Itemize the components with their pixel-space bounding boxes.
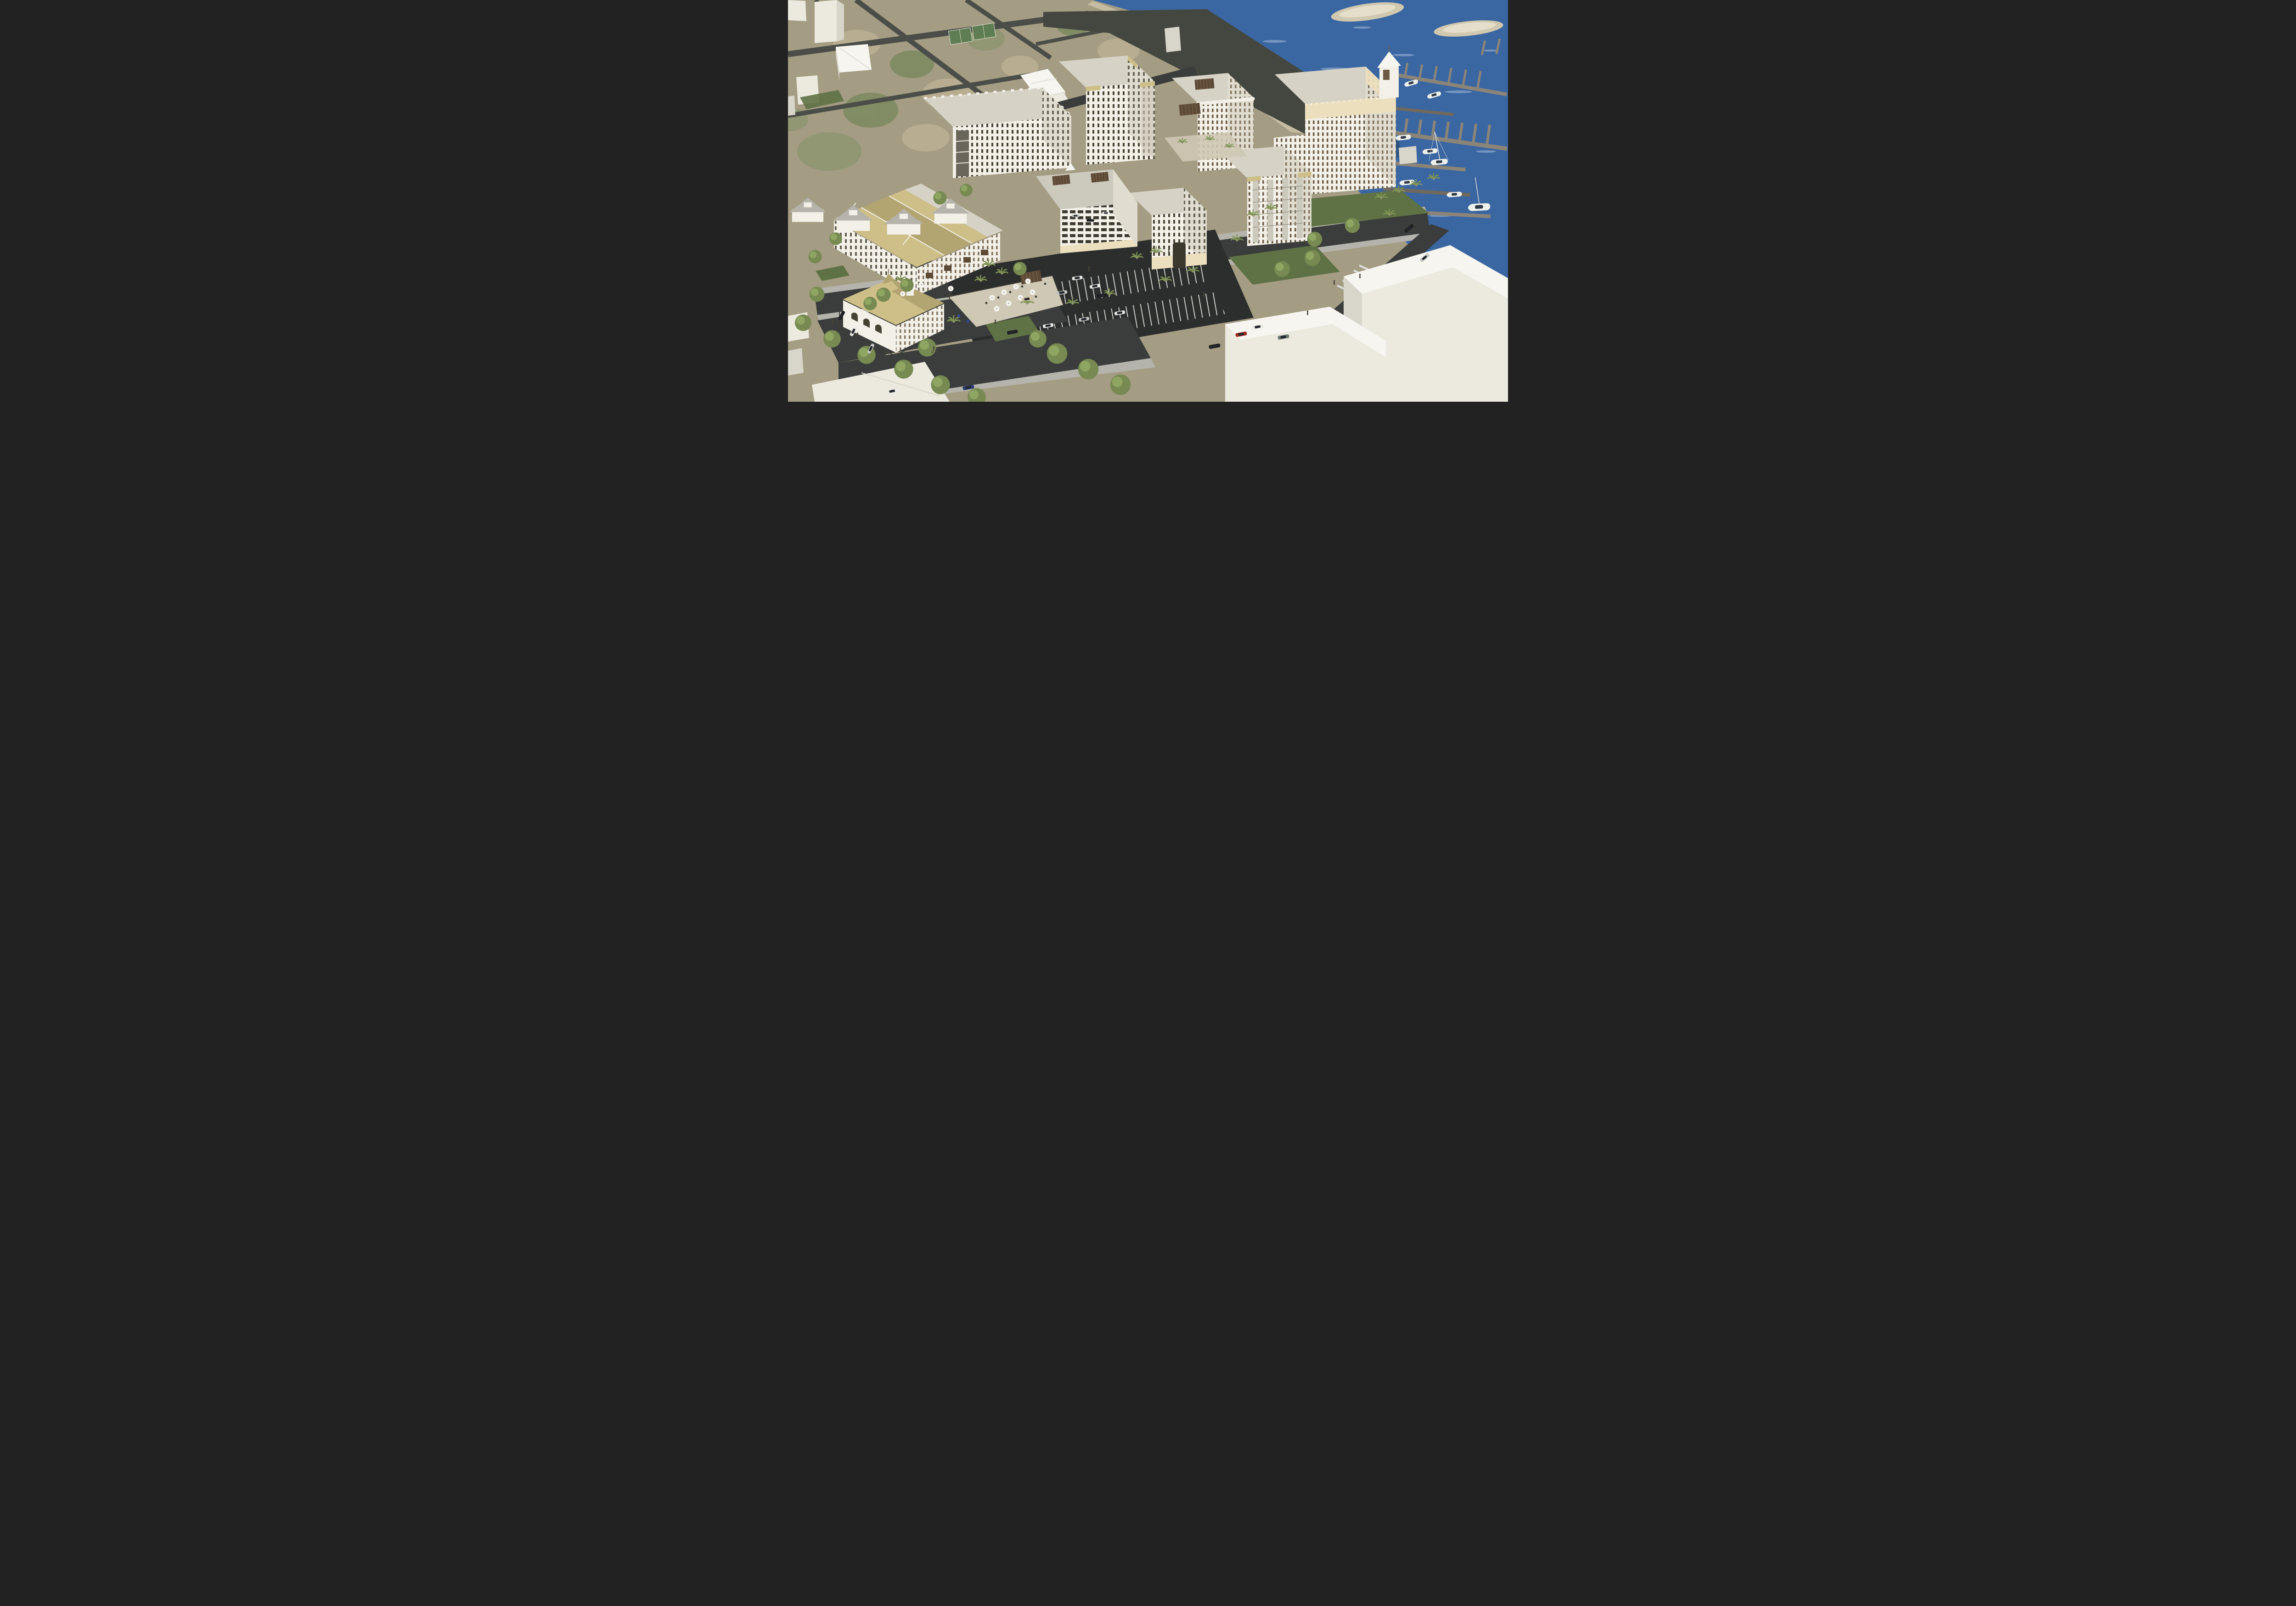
aerial-rendering xyxy=(788,0,1508,402)
rooftop-pergola xyxy=(1194,78,1214,90)
massing-block-small xyxy=(788,348,804,376)
balcony-bay xyxy=(1142,87,1154,156)
cafe-umbrella xyxy=(948,286,954,292)
entry-archway xyxy=(1173,242,1186,268)
context-building xyxy=(1165,27,1181,52)
plaza-pavilion-roof xyxy=(1179,103,1200,116)
context-building xyxy=(788,0,806,21)
blue-planter-urn xyxy=(957,314,960,317)
context-building xyxy=(815,0,844,43)
parked-car xyxy=(1072,214,1079,217)
parked-car xyxy=(1086,219,1094,221)
open-breezeway xyxy=(956,130,969,176)
blue-planter-urn xyxy=(967,320,969,323)
context-building xyxy=(788,95,795,116)
context-building xyxy=(1399,146,1417,164)
deck-pergola xyxy=(1091,172,1109,183)
deck-pergola xyxy=(1052,174,1070,185)
rendering-canvas xyxy=(788,0,1508,402)
parked-car xyxy=(1102,212,1109,214)
